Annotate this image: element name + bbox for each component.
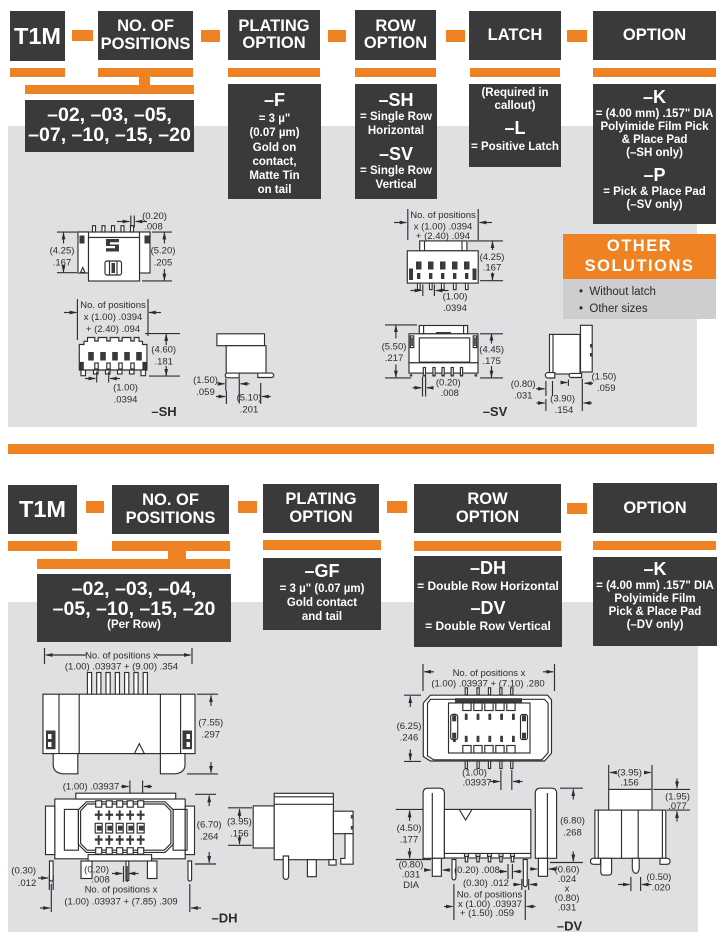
svg-text:(3.95): (3.95)	[227, 817, 252, 828]
svg-text:DIA: DIA	[403, 880, 420, 891]
svg-text:.201: .201	[240, 405, 259, 416]
svg-text:.181: .181	[154, 357, 173, 368]
svg-text:.059: .059	[597, 383, 616, 394]
svg-text:.0394: .0394	[443, 303, 467, 314]
svg-text:(1.50): (1.50)	[193, 375, 218, 386]
svg-text:.020: .020	[652, 883, 671, 894]
svg-text:.012: .012	[18, 878, 37, 889]
svg-text:(0.20): (0.20)	[142, 211, 167, 222]
svg-text:(7.55): (7.55)	[198, 718, 223, 729]
svg-text:(1.00): (1.00)	[113, 383, 138, 394]
svg-text:.008: .008	[440, 388, 459, 399]
svg-text:.246: .246	[400, 733, 419, 744]
svg-text:(1.00) .03937 + (9.00) .354: (1.00) .03937 + (9.00) .354	[65, 661, 178, 672]
svg-text:–SH: –SH	[151, 404, 176, 419]
svg-text:+ (2.40) .094: + (2.40) .094	[86, 324, 140, 335]
svg-text:(0.80): (0.80)	[511, 379, 536, 390]
svg-text:.031: .031	[402, 870, 421, 881]
svg-text:.217: .217	[385, 353, 404, 364]
svg-text:(0.30) .012: (0.30) .012	[463, 878, 509, 889]
svg-text:(1.50): (1.50)	[592, 372, 617, 383]
svg-text:–SV: –SV	[483, 404, 508, 419]
svg-text:No. of positions x: No. of positions x	[85, 885, 158, 896]
svg-text:(5.10): (5.10)	[237, 393, 262, 404]
svg-text:(4.60): (4.60)	[151, 345, 176, 356]
svg-text:.008: .008	[144, 222, 163, 233]
svg-text:(0.30): (0.30)	[11, 866, 36, 877]
svg-text:No. of positions: No. of positions	[80, 300, 146, 311]
svg-text:.154: .154	[555, 405, 574, 416]
svg-text:.268: .268	[563, 828, 582, 839]
svg-text:.167: .167	[53, 258, 72, 269]
svg-text:(1.00) .03937: (1.00) .03937	[63, 782, 120, 793]
svg-text:.031: .031	[558, 903, 577, 914]
svg-text:(5.20): (5.20)	[151, 246, 176, 257]
svg-text:(1.00) .03937 + (7.85) .309: (1.00) .03937 + (7.85) .309	[64, 896, 177, 907]
svg-text:(4.25): (4.25)	[50, 246, 75, 257]
svg-text:.264: .264	[200, 831, 219, 842]
svg-text:+ (1.50) .059: + (1.50) .059	[460, 908, 514, 919]
svg-text:.059: .059	[196, 387, 215, 398]
svg-text:(6.80): (6.80)	[560, 816, 585, 827]
svg-text:.177: .177	[400, 835, 419, 846]
svg-text:(3.90): (3.90)	[550, 394, 575, 405]
svg-text:.156: .156	[230, 828, 249, 839]
svg-text:.297: .297	[202, 730, 221, 741]
svg-text:x (1.00) .0394: x (1.00) .0394	[84, 312, 143, 323]
svg-text:No. of positions: No. of positions	[410, 210, 476, 221]
svg-text:(4.45): (4.45)	[479, 345, 504, 356]
svg-text:.167: .167	[483, 263, 502, 274]
svg-text:.205: .205	[154, 258, 173, 269]
svg-text:(4.50): (4.50)	[397, 823, 422, 834]
svg-text:(6.25): (6.25)	[397, 721, 422, 732]
svg-text:–DH: –DH	[211, 911, 237, 926]
svg-text:(5.50): (5.50)	[382, 342, 407, 353]
svg-text:–DV: –DV	[557, 919, 583, 934]
svg-text:.175: .175	[482, 356, 501, 367]
svg-text:(4.25): (4.25)	[480, 252, 505, 263]
svg-text:.031: .031	[514, 391, 533, 402]
svg-text:No. of positions x: No. of positions x	[85, 651, 158, 662]
svg-text:(0.50): (0.50)	[646, 872, 671, 883]
svg-text:(0.20) .008: (0.20) .008	[454, 865, 500, 876]
svg-text:No. of positions x: No. of positions x	[453, 668, 526, 679]
svg-text:(1.00): (1.00)	[443, 292, 468, 303]
svg-text:.156: .156	[620, 778, 639, 789]
svg-text:.0394: .0394	[114, 395, 138, 406]
svg-text:.03937: .03937	[462, 778, 491, 789]
svg-text:.077: .077	[668, 801, 687, 812]
svg-text:(6.70): (6.70)	[197, 820, 222, 831]
